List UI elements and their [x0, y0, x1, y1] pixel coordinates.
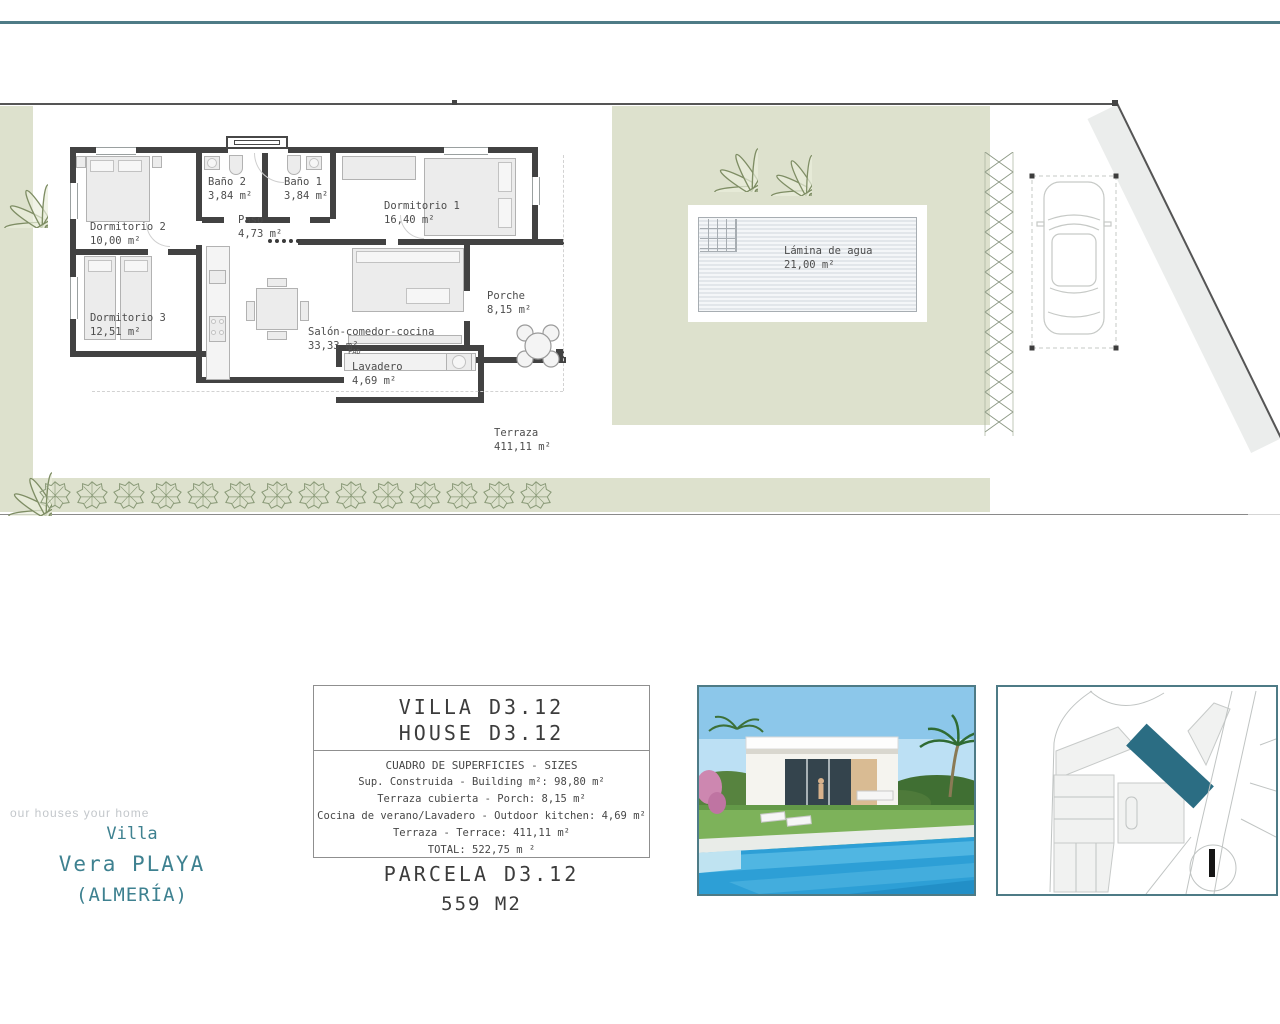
boundary-marker	[452, 100, 457, 105]
wall	[70, 147, 228, 153]
room-label-terraza: Terraza411,11 m²	[494, 427, 551, 454]
room-name: Lavadero	[352, 361, 403, 373]
project-line-province: (ALMERÍA)	[22, 884, 242, 906]
brand-slogan: our houses your home	[10, 806, 180, 820]
parking-space	[1028, 170, 1120, 356]
door-arc	[254, 153, 284, 183]
room-area: 3,84 m²	[284, 190, 328, 202]
wall	[310, 217, 330, 223]
chair	[267, 331, 287, 340]
room-label-bano-1: Baño 13,84 m²	[284, 176, 328, 203]
palm-tree-icon	[0, 132, 48, 228]
pillow	[88, 260, 112, 272]
wall	[398, 239, 564, 245]
palm-tree-icon	[722, 106, 812, 196]
room-area: 16,40 m²	[384, 214, 435, 226]
room-label-lamina-de-agua: Lámina de agua 21,00 m²	[784, 245, 873, 272]
room-area: 411,11 m²	[494, 441, 551, 453]
map-panel	[996, 685, 1278, 896]
window	[532, 177, 540, 205]
plot-boundary-top	[0, 103, 1118, 105]
room-label-salon: Salón-comedor-cocina33,33 m²	[308, 326, 434, 353]
terrace-dashed-edge	[92, 391, 563, 392]
wall	[76, 249, 148, 255]
kitchen-counter	[206, 246, 230, 380]
house-title: HOUSE D3.12	[314, 720, 649, 746]
washer-drum	[452, 355, 466, 369]
car-icon	[1037, 182, 1111, 334]
chair	[246, 301, 255, 321]
room-name: Dormitorio 1	[384, 200, 460, 212]
chair	[300, 301, 309, 321]
toilet	[287, 155, 301, 175]
wall	[196, 245, 202, 357]
surfaces-info-box: VILLA D3.12 HOUSE D3.12 CUADRO DE SUPERF…	[313, 685, 650, 858]
divider	[314, 750, 649, 751]
room-name: Lámina de agua	[784, 245, 873, 257]
villa-render-image	[699, 687, 974, 894]
location-map	[998, 687, 1276, 894]
wardrobe	[342, 156, 416, 180]
room-label-dormitorio-1: Dormitorio 116,40 m²	[384, 200, 460, 227]
parcel-block: PARCELA D3.12 559 M2	[313, 862, 650, 915]
room-name: Dormitorio 3	[90, 312, 166, 324]
pillow	[90, 160, 114, 172]
burner	[211, 330, 216, 335]
nightstand	[76, 156, 86, 168]
surface-row: Terraza cubierta - Porch: 8,15 m²	[314, 791, 649, 808]
surface-row: Sup. Construida - Building m²: 98,80 m²	[314, 774, 649, 791]
toilet	[229, 155, 243, 175]
project-line-villa: Villa	[22, 824, 242, 844]
room-area: 21,00 m²	[784, 259, 835, 271]
project-line-location: Vera PLAYA	[22, 852, 242, 876]
room-area: 10,00 m²	[90, 235, 141, 247]
parcel-title: PARCELA D3.12	[313, 862, 650, 886]
room-area: 3,84 m²	[208, 190, 252, 202]
room-label-dormitorio-2: Dormitorio 210,00 m²	[90, 221, 166, 248]
wall	[196, 153, 202, 221]
room-area: 4,73 m²	[238, 228, 282, 240]
wall	[336, 351, 342, 367]
pillow	[118, 160, 142, 172]
dining-table	[256, 288, 298, 330]
wall	[168, 249, 196, 255]
fad-label: FAD	[348, 348, 361, 356]
project-branding: Villa Vera PLAYA (ALMERÍA)	[22, 824, 242, 906]
plot-boundary-bottom-faint	[1248, 514, 1280, 515]
pillow	[498, 198, 512, 228]
surfaces-table-title: CUADRO DE SUPERFICIES - SIZES	[314, 757, 649, 774]
wall	[336, 397, 484, 403]
shadow-mask	[1110, 56, 1280, 102]
room-label-lavadero: Lavadero4,69 m²	[352, 361, 403, 388]
boundary-marker	[1112, 100, 1118, 106]
room-label-paso: Paso4,73 m²	[238, 214, 282, 241]
wall	[288, 147, 538, 153]
window	[444, 147, 488, 155]
window	[96, 147, 136, 155]
plot-boundary-diagonal	[1116, 103, 1280, 438]
window	[70, 277, 78, 319]
villa-title: VILLA D3.12	[314, 694, 649, 720]
wall	[532, 205, 538, 245]
coffee-table	[406, 288, 450, 304]
plot-boundary-bottom	[0, 514, 1248, 515]
pillow	[124, 260, 148, 272]
burner	[211, 319, 216, 324]
hedge-strip	[984, 152, 1014, 438]
photo-panel	[697, 685, 976, 896]
room-name: Dormitorio 2	[90, 221, 166, 233]
parcel-area: 559 M2	[313, 893, 650, 915]
burner	[219, 319, 224, 324]
room-name: Salón-comedor-cocina	[308, 326, 434, 338]
nightstand	[152, 156, 162, 168]
wall	[202, 217, 224, 223]
surface-row: Cocina de verano/Lavadero - Outdoor kitc…	[314, 808, 649, 825]
wall	[464, 245, 470, 291]
surface-row: Terraza - Terrace: 411,11 m²	[314, 825, 649, 842]
wall	[532, 147, 538, 179]
surface-row: TOTAL: 522,75 m ²	[314, 842, 649, 859]
wall	[330, 153, 336, 219]
room-area: 4,69 m²	[352, 375, 396, 387]
room-area: 8,15 m²	[487, 304, 531, 316]
room-area: 12,51 m²	[90, 326, 141, 338]
room-name: Paso	[238, 214, 263, 226]
north-marker	[1209, 849, 1215, 877]
plan-sheet: Lámina de agua 21,00 m²	[0, 0, 1280, 1024]
wall	[298, 239, 386, 245]
window	[70, 183, 78, 219]
room-name: Terraza	[494, 427, 538, 439]
pool-steps	[700, 219, 737, 252]
wall	[478, 345, 484, 403]
sink-basin	[309, 158, 319, 168]
sofa-back	[356, 251, 460, 263]
room-name: Porche	[487, 290, 525, 302]
room-label-dormitorio-3: Dormitorio 312,51 m²	[90, 312, 166, 339]
room-name: Baño 1	[284, 176, 322, 188]
entry-canopy-inner	[234, 140, 280, 145]
room-label-porche: Porche8,15 m²	[487, 290, 531, 317]
wall	[464, 321, 470, 347]
pool-area: Lámina de agua 21,00 m²	[688, 205, 927, 322]
pillow	[498, 162, 512, 192]
burner	[219, 330, 224, 335]
bushes-row	[30, 478, 590, 514]
wall	[70, 351, 206, 357]
chair	[267, 278, 287, 287]
room-label-bano-2: Baño 23,84 m²	[208, 176, 252, 203]
sink-basin	[207, 158, 217, 168]
site-plan: Lámina de agua 21,00 m²	[0, 0, 1280, 560]
porch-table-set	[508, 318, 568, 374]
room-name: Baño 2	[208, 176, 246, 188]
kitchen-sink	[209, 270, 226, 284]
